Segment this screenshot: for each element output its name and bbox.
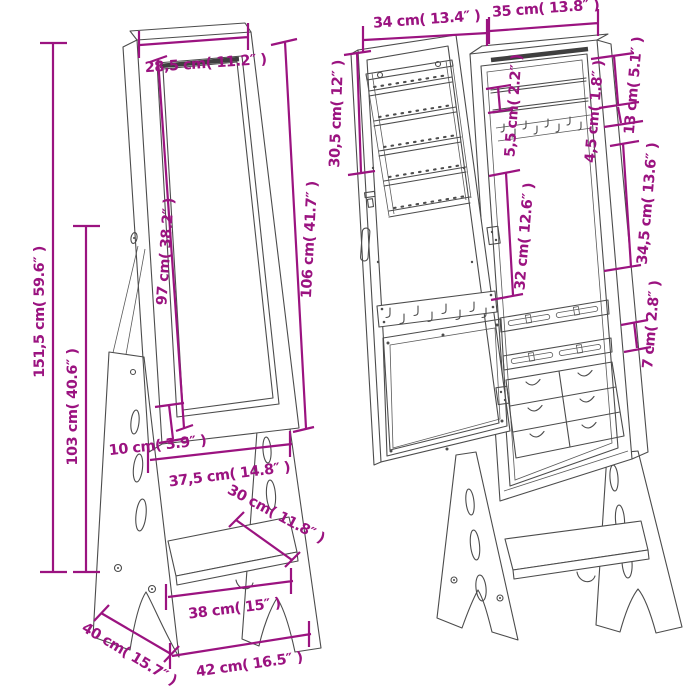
dim-label-stand-height: 103 cm( 40.6″ ) (65, 348, 81, 465)
front-view-figure (93, 23, 321, 657)
dim-label-door-rack-height: 30,5 cm( 12″ ) (327, 60, 347, 168)
dim-label-cabinet-width: 35 cm( 13.8″ ) (492, 0, 600, 21)
dim-label-total-height: 151,5 cm( 59.6″ ) (32, 246, 48, 378)
dimension-diagram: 151,5 cm( 59.6″ ) 103 cm( 40.6″ ) 28,5 c… (0, 0, 700, 700)
dim-label-cabinet-height: 106 cm( 41.7″ ) (299, 181, 321, 299)
dim-total-height: 151,5 cm( 59.6″ ) (32, 43, 67, 572)
front-cabinet-body (123, 23, 299, 452)
dim-drawer-height: 7 cm( 2.8″ ) (621, 280, 664, 369)
dim-cabinet-width: 35 cm( 13.8″ ) (489, 0, 600, 44)
dim-stand-height: 103 cm( 40.6″ ) (65, 226, 100, 572)
dim-label-door-width: 34 cm( 13.4″ ) (373, 8, 481, 31)
dim-label-drawer-height: 7 cm( 2.8″ ) (640, 280, 664, 369)
dim-label-base-width: 42 cm( 16.5″ ) (195, 650, 304, 681)
dim-label-middle-compartment: 34,5 cm( 13.6″ ) (635, 142, 662, 265)
diagram-svg: 151,5 cm( 59.6″ ) 103 cm( 40.6″ ) 28,5 c… (0, 0, 700, 700)
